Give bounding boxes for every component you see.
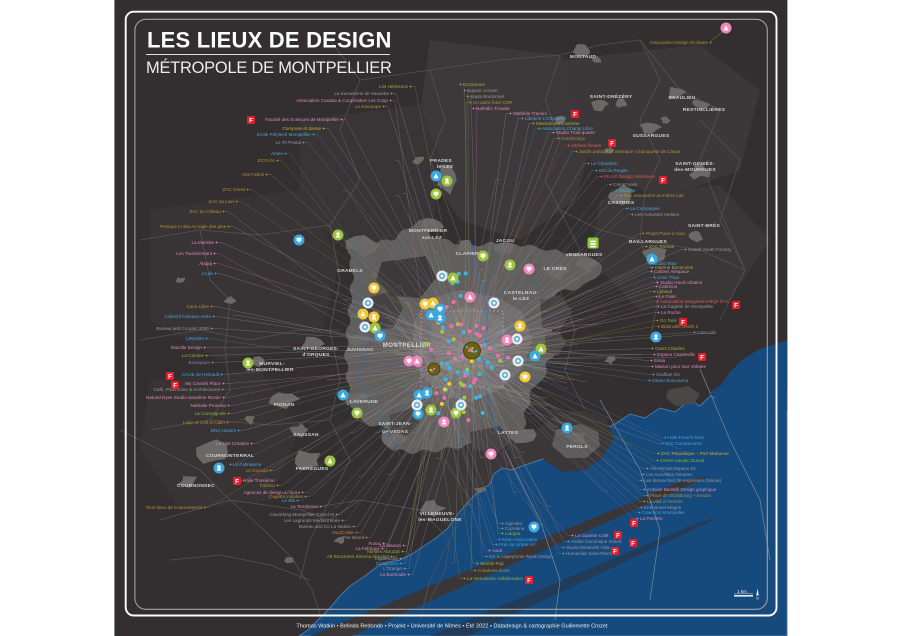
svg-text:1 km: 1 km: [737, 589, 747, 594]
svg-text:BEAULIEU: BEAULIEU: [669, 95, 696, 101]
svg-text:Haüab South Factory: Haüab South Factory: [688, 247, 732, 252]
svg-text:La Gazette Café: La Gazette Café: [575, 533, 609, 538]
svg-text:Créatives école: Créatives école: [478, 568, 510, 573]
svg-text:F: F: [613, 548, 617, 555]
svg-text:La Compagnie: La Compagnie: [630, 206, 660, 211]
svg-text:VILLENEUVE-: VILLENEUVE-: [419, 511, 454, 517]
svg-text:Faculté des Sciences de Montpe: Faculté des Sciences de Montpellier: [265, 117, 339, 122]
svg-text:F: F: [527, 577, 531, 584]
svg-text:The Island: The Island: [343, 535, 365, 540]
svg-text:Les Activistes Ateliers: Les Activistes Ateliers: [635, 212, 680, 217]
svg-text:JACOU: JACOU: [496, 238, 515, 244]
svg-text:Halo French Tech: Halo French Tech: [668, 435, 704, 440]
svg-text:LAVERUNE: LAVERUNE: [350, 399, 379, 405]
svg-text:Bureau and Co La station: Bureau and Co La station: [299, 524, 352, 529]
svg-text:L'Orange: L'Orange: [383, 566, 402, 571]
svg-text:F: F: [631, 540, 635, 547]
svg-text:Cane Libre: Cane Libre: [187, 304, 210, 309]
svg-text:SAINT-GEORGES-: SAINT-GEORGES-: [293, 346, 339, 352]
svg-text:Bât du Peuple: Bât du Peuple: [599, 168, 628, 173]
svg-text:CASTELNAU-: CASTELNAU-: [504, 290, 538, 296]
svg-text:F: F: [610, 140, 614, 147]
svg-text:LiReDire: LiReDire: [186, 336, 204, 341]
svg-text:JUVIGNAC: JUVIGNAC: [346, 347, 373, 353]
svg-text:SAINT-JEAN-: SAINT-JEAN-: [378, 421, 412, 427]
svg-text:F: F: [168, 373, 172, 380]
svg-text:Presque in situ Au sigle des p: Presque in situ Au sigle des pins: [160, 224, 227, 229]
svg-text:Les Hérissons: Les Hérissons: [379, 84, 409, 89]
svg-text:Anteo: Anteo: [271, 151, 283, 156]
svg-text:ZAC du Lain: ZAC du Lain: [208, 199, 234, 204]
svg-text:La Ruche: La Ruche: [661, 310, 681, 315]
svg-text:COURNONSEC: COURNONSEC: [177, 483, 215, 489]
svg-text:Collectif Ceinture verte: Collectif Ceinture verte: [165, 314, 212, 319]
svg-text:L'Lab: L'Lab: [202, 271, 214, 276]
svg-text:Do Tank: Do Tank: [660, 318, 677, 323]
svg-text:Projet Place à Sixa: Projet Place à Sixa: [646, 231, 685, 236]
svg-text:Atelier Dominique Imbert: Atelier Dominique Imbert: [571, 539, 622, 544]
svg-text:F: F: [734, 302, 738, 309]
svg-text:Le Tri Postal: Le Tri Postal: [275, 140, 301, 145]
svg-text:PILAG Design Imprimeur: PILAG Design Imprimeur: [604, 174, 656, 179]
svg-text:F: F: [173, 382, 177, 389]
svg-text:La Maison: La Maison: [380, 543, 402, 548]
svg-text:Le Bib: Le Bib: [282, 498, 295, 503]
svg-text:Pop-Up Urban Art: Pop-Up Urban Art: [499, 542, 536, 547]
svg-text:VENDARGUES: VENDARGUES: [565, 252, 602, 258]
svg-text:Oasis Citadine: Oasis Citadine: [655, 346, 685, 351]
svg-text:My Cowork Place: My Cowork Place: [185, 381, 221, 386]
svg-text:Humanlab Saint-Pierre: Humanlab Saint-Pierre: [566, 551, 613, 556]
svg-text:Lutopia: Lutopia: [505, 531, 521, 536]
svg-text:Café, Patrimoine & Architectur: Café, Patrimoine & Architectures: [154, 387, 221, 392]
svg-text:La Marinile: La Marinile: [192, 240, 215, 245]
svg-text:La Fabriaterie: La Fabriaterie: [233, 462, 262, 467]
svg-text:Association Casaba & Coopérati: Association Casaba & Coopérative Lez Coo…: [296, 98, 388, 103]
svg-text:MONTPELLIER: MONTPELLIER: [383, 343, 432, 349]
svg-text:Squat Boutonnet: Squat Boutonnet: [470, 94, 505, 99]
svg-text:La Barricade: La Barricade: [380, 572, 406, 577]
svg-text:Squant cocoon: Squant cocoon: [467, 88, 498, 93]
svg-text:F: F: [616, 532, 620, 539]
svg-text:Maison pour tour Voltaire: Maison pour tour Voltaire: [655, 364, 707, 369]
svg-text:PIGNAN: PIGNAN: [274, 402, 295, 408]
svg-text:La soucoupe: La soucoupe: [355, 104, 382, 109]
svg-text:Antoine Bardelli Design graphi: Antoine Bardelli Design graphique: [647, 487, 717, 492]
svg-text:Jardin partagé et artistique |: Jardin partagé et artistique | Guinguett…: [579, 149, 681, 154]
svg-text:Coworcin Montpellier: Coworcin Montpellier: [642, 510, 685, 515]
svg-text:les-MAGUELONE: les-MAGUELONE: [418, 517, 462, 523]
svg-text:CAUE de l'Hérault: CAUE de l'Hérault: [182, 372, 220, 377]
svg-text:MÉTROPOLE DE MONTPELLIER: MÉTROPOLE DE MONTPELLIER: [146, 58, 392, 77]
svg-text:La Carmagnole: La Carmagnole: [195, 411, 227, 416]
svg-text:Worlds Pop: Worlds Pop: [480, 561, 504, 566]
svg-text:ZAC du Côteau: ZAC du Côteau: [189, 209, 221, 214]
svg-text:GRABELS: GRABELS: [337, 268, 363, 274]
svg-text:Carbert Alespace: Carbert Alespace: [654, 269, 690, 274]
svg-text:SAUSSAN: SAUSSAN: [293, 432, 319, 438]
svg-text:La Cagette de Montpellier: La Cagette de Montpellier: [661, 304, 714, 309]
svg-text:Ateliers Abruzzo: Ateliers Abruzzo: [367, 549, 401, 554]
svg-text:F: F: [235, 478, 239, 485]
svg-text:COURNONTERRAL: COURNONTERRAL: [206, 453, 254, 459]
svg-text:MONTAUD: MONTAUD: [570, 54, 597, 60]
svg-text:Via Ferrata Espace 52: Via Ferrata Espace 52: [650, 466, 696, 471]
svg-text:Association Design Occitane: Association Design Occitane: [650, 40, 709, 45]
svg-text:CASTRIES: CASTRIES: [608, 200, 635, 206]
svg-text:Studio Elisabeth Vida: Studio Elisabeth Vida: [566, 545, 610, 550]
svg-text:F: F: [700, 354, 704, 361]
svg-text:Fabrico: Fabrico: [260, 483, 276, 488]
svg-text:La Tendresse: La Tendresse: [291, 504, 319, 509]
svg-text:le-LEZ: le-LEZ: [437, 164, 453, 170]
svg-text:Les Transformant: Les Transformant: [176, 251, 212, 256]
svg-text:les-MONTPELLIER: les-MONTPELLIER: [246, 367, 293, 373]
svg-text:PRADES: PRADES: [430, 158, 452, 164]
svg-text:Lapic et Coll et Calm: Lapic et Coll et Calm: [183, 420, 226, 425]
svg-text:Des rencontres au Fabre Lab: Des rencontres au Fabre Lab: [624, 193, 684, 198]
svg-text:d'ORQUES: d'ORQUES: [302, 352, 330, 358]
svg-text:Vitrines bleues: Vitrines bleues: [571, 143, 602, 148]
svg-text:GersDesign: GersDesign: [561, 136, 586, 141]
svg-text:Ecole Polytech Montpellier: Ecole Polytech Montpellier: [257, 132, 312, 137]
svg-text:Espace Capdeville: Espace Capdeville: [657, 352, 695, 357]
svg-text:La menuiserie collaborative: La menuiserie collaborative: [467, 576, 523, 581]
svg-text:Olivier Boscournu: Olivier Boscournu: [652, 378, 689, 383]
svg-text:Nathalio Trovato: Nathalio Trovato: [476, 106, 510, 111]
svg-text:ZAC Cambacères: ZAC Cambacères: [665, 441, 702, 446]
svg-text:DNA cowork: DNA cowork: [211, 428, 237, 433]
svg-text:Arts Fabrik: Arts Fabrik: [242, 172, 265, 177]
svg-text:LES LIEUX DE DESIGN: LES LIEUX DE DESIGN: [147, 28, 392, 53]
svg-text:ZAC République – Port Marianne: ZAC République – Port Marianne: [661, 451, 729, 456]
svg-text:Tiers lieux de Cournonterral: Tiers lieux de Cournonterral: [145, 505, 202, 510]
svg-text:La Perrière: La Perrière: [640, 516, 663, 521]
svg-text:Les Lagrands Méditerranée: Les Lagrands Méditerranée: [284, 518, 341, 523]
svg-text:le-LEZ: le-LEZ: [513, 296, 529, 302]
svg-text:F: F: [681, 319, 685, 326]
svg-text:La Cité Créative: La Cité Créative: [216, 441, 249, 446]
svg-text:Essia: Essia: [654, 358, 666, 363]
svg-text:Ion in Lapeyronie Wyak Design: Ion in Lapeyronie Wyak Design: [489, 554, 553, 559]
svg-text:BAILLARGUES: BAILLARGUES: [629, 239, 668, 245]
svg-text:Place de Strasbourg + Ensam: Place de Strasbourg + Ensam: [650, 493, 711, 498]
svg-text:F: F: [632, 520, 636, 527]
svg-text:SUSSARGUES: SUSSARGUES: [633, 133, 670, 139]
svg-text:Comm'Vass: Comm'Vass: [613, 182, 638, 187]
svg-text:La menuiserie de Sauvette: La menuiserie de Sauvette: [334, 91, 389, 96]
svg-text:MURVIEL-: MURVIEL-: [259, 361, 285, 367]
svg-text:ECOVIA: ECOVIA: [258, 158, 276, 163]
svg-text:Graffam On: Graffam On: [656, 372, 680, 377]
svg-text:MONTFERRIER: MONTFERRIER: [409, 228, 448, 234]
svg-text:Intactile Design: Intactile Design: [171, 345, 203, 350]
svg-text:Bureau and Co parc 2000: Bureau and Co parc 2000: [156, 326, 209, 331]
svg-text:Compose et danse: Compose et danse: [282, 126, 321, 131]
svg-text:Axial: Axial: [492, 548, 502, 553]
svg-text:Le Chaudron: Le Chaudron: [591, 161, 618, 166]
svg-text:F: F: [249, 117, 253, 124]
svg-text:La Cantine: La Cantine: [182, 353, 205, 358]
svg-text:Le Cocoon: Le Cocoon: [246, 468, 269, 473]
svg-text:LATTES: LATTES: [498, 430, 519, 436]
svg-text:Les dimanches de respiration (: Les dimanches de respiration (Mama): [644, 478, 722, 483]
svg-text:Natural Dyes Studio Sandrine R: Natural Dyes Studio Sandrine Rozier: [146, 395, 222, 400]
svg-text:Ecctopium: Ecctopium: [189, 360, 211, 365]
svg-text:ZAC Gimel: ZAC Gimel: [223, 187, 245, 192]
svg-text:Thomas Watkin • Belinda Redond: Thomas Watkin • Belinda Redondo • Projek…: [296, 623, 608, 630]
svg-text:Centre Ascasc Dunoti: Centre Ascasc Dunoti: [660, 458, 704, 463]
svg-text:F: F: [573, 111, 577, 118]
svg-text:Studio Trois-quatre: Studio Trois-quatre: [556, 130, 595, 135]
svg-text:Coworking Montpellier Grand M: Coworking Montpellier Grand M: [269, 512, 334, 517]
svg-text:des-MOURGUES: des-MOURGUES: [674, 167, 716, 173]
svg-text:Nathalie Pruneau: Nathalie Pruneau: [191, 403, 227, 408]
svg-text:sur-LEZ: sur-LEZ: [422, 235, 442, 241]
svg-text:F: F: [661, 177, 665, 184]
svg-text:Les nouvelles Driantes: Les nouvelles Driantes: [646, 472, 693, 477]
svg-text:La vibé à l'envers: La vibé à l'envers: [647, 499, 683, 504]
svg-text:Liton Lab: Liton Lab: [697, 330, 716, 335]
svg-text:Alapaj: Alapaj: [199, 261, 212, 266]
svg-text:Un autre futur CGR: Un autre futur CGR: [473, 100, 513, 105]
svg-text:Occitanum: Occitanum: [463, 82, 485, 87]
